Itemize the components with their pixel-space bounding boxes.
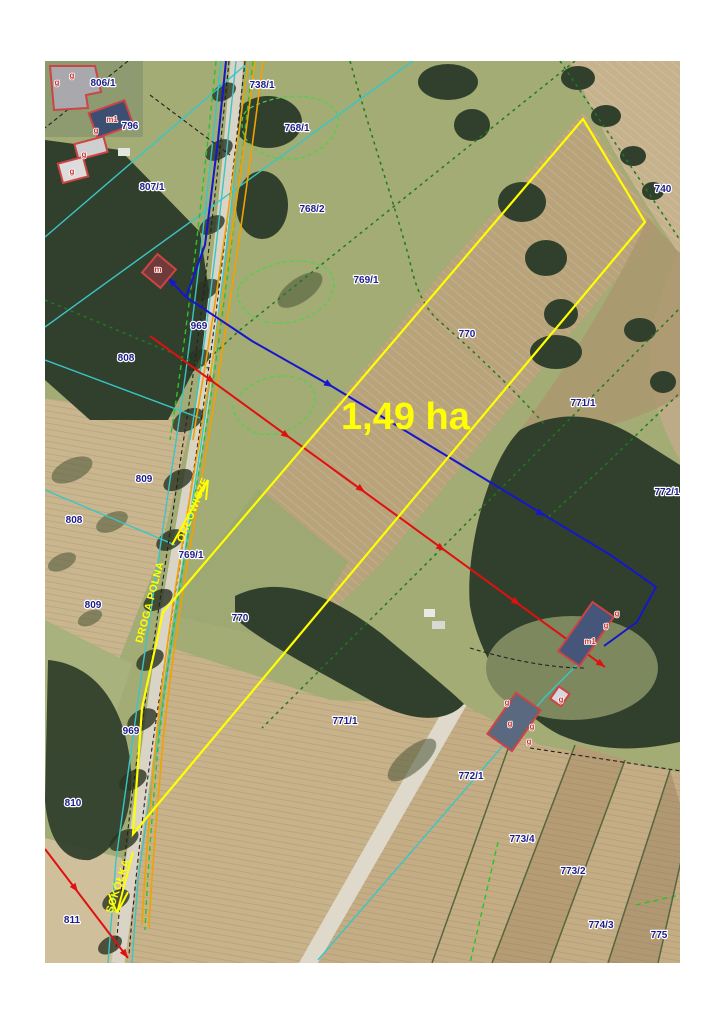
parcel-label: 772/1 bbox=[458, 771, 483, 782]
building-label: g bbox=[55, 78, 60, 87]
building-label: g bbox=[615, 609, 620, 618]
parcel-label: 771/1 bbox=[570, 398, 595, 409]
parcel-label: 969 bbox=[123, 726, 140, 737]
parcel-label: 740 bbox=[655, 184, 672, 195]
parcel-label: 770 bbox=[459, 329, 476, 340]
parcel-label: 969 bbox=[191, 321, 208, 332]
parcel-label: 768/1 bbox=[284, 123, 309, 134]
parcel-label: 811 bbox=[64, 915, 81, 926]
building-label: g bbox=[527, 737, 532, 746]
parcel-label: 775 bbox=[651, 930, 668, 941]
parcel-label: 771/1 bbox=[332, 716, 357, 727]
building-label: g bbox=[604, 621, 609, 630]
building-label: m bbox=[154, 265, 161, 274]
parcel-label: 808 bbox=[66, 515, 83, 526]
map-page: 806/1796807/1738/1768/1768/2740769/17707… bbox=[0, 0, 724, 1024]
building-label: m1 bbox=[584, 637, 596, 646]
building-label: g bbox=[94, 126, 99, 135]
building-label: g bbox=[530, 722, 535, 731]
building-label: g bbox=[559, 695, 564, 704]
parcel-label: 806/1 bbox=[90, 78, 115, 89]
building-label: g bbox=[70, 167, 75, 176]
parcel-label: 768/2 bbox=[299, 204, 324, 215]
building-label: g bbox=[508, 719, 513, 728]
parcel-label: 738/1 bbox=[249, 80, 274, 91]
parcel-label: 773/2 bbox=[560, 866, 585, 877]
building-label: g bbox=[70, 71, 75, 80]
parcel-label: 807/1 bbox=[139, 182, 164, 193]
parcel-label: 810 bbox=[65, 798, 82, 809]
parcel-label: 772/1 bbox=[654, 487, 679, 498]
parcel-label: 770 bbox=[232, 613, 249, 624]
parcel-label: 808 bbox=[118, 353, 135, 364]
area-label: 1,49 ha bbox=[341, 396, 471, 438]
parcel-label: 774/3 bbox=[588, 920, 613, 931]
parcel-label: 769/1 bbox=[178, 550, 203, 561]
parcel-label: 796 bbox=[122, 121, 139, 132]
parcel-label: 809 bbox=[136, 474, 153, 485]
building-label: g bbox=[505, 698, 510, 707]
building-label: g bbox=[82, 150, 87, 159]
parcel-label: 769/1 bbox=[353, 275, 378, 286]
parcel-label: 809 bbox=[85, 600, 102, 611]
map-canvas[interactable]: 806/1796807/1738/1768/1768/2740769/17707… bbox=[0, 0, 724, 1024]
building-label: m1 bbox=[106, 115, 118, 124]
parcel-label: 773/4 bbox=[509, 834, 534, 845]
